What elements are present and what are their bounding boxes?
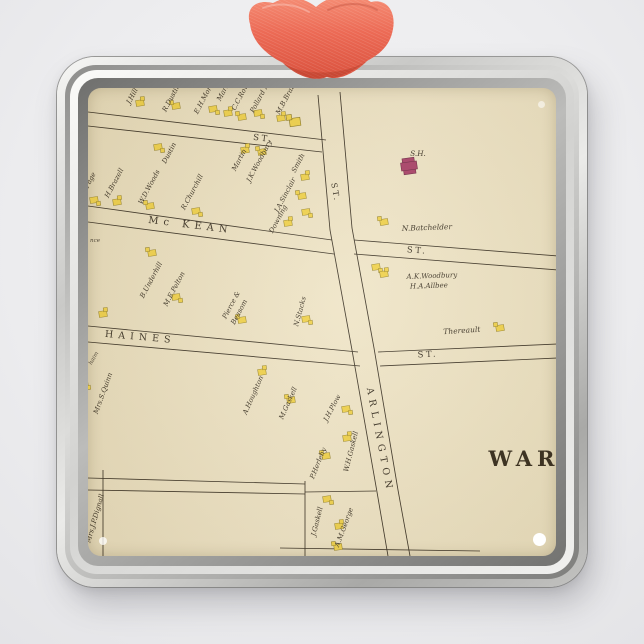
map-label-name-16: J.Page: [88, 171, 98, 195]
map-print: ST.ST.Mc KEANHAINESST.ST.ARLINGTONncehai…: [88, 88, 556, 556]
map-label-name-26: B.Underhill: [138, 261, 164, 301]
house-marker: [235, 111, 246, 121]
frame-highlight-top-right: [538, 101, 545, 108]
house-marker: [154, 143, 165, 153]
map-label-street-4: ST.: [407, 245, 428, 256]
map-label-name-38: M.Gaskell: [277, 386, 299, 422]
map-label-name-18: W.D.Woods: [137, 168, 162, 206]
map-label-name-24: Smith: [290, 152, 307, 174]
map-label-frag-7: nce: [90, 238, 101, 244]
map-label-name-27: M.E.Pelton: [161, 270, 186, 308]
house-marker: [493, 322, 504, 332]
map-label-name-37: A.Houghton: [241, 375, 266, 417]
map-label-street-1: ST.: [329, 182, 341, 203]
map-label-frag-8: haim: [88, 351, 100, 366]
house-marker: [342, 405, 353, 415]
house-marker: [377, 216, 388, 226]
house-marker: [135, 96, 145, 106]
map-label-name-32: A.K.Woodbury: [405, 271, 458, 281]
map-label-name-21: Martin: [230, 148, 249, 173]
house-marker: [90, 196, 101, 206]
house-marker: [88, 380, 91, 390]
map-label-name-14: Pollard Mills: [248, 88, 276, 115]
product-photo: ST.ST.Mc KEANHAINESST.ST.ARLINGTONncehai…: [0, 0, 644, 644]
map-label-name-31: N.Batchelder: [401, 222, 453, 233]
house-marker: [112, 195, 122, 205]
map-label-street-6: ARLINGTON: [364, 386, 395, 495]
frame-highlight-bottom-right: [533, 533, 546, 546]
map-label-name-17: H.Brazell: [103, 167, 126, 200]
ribbon-knot: [249, 0, 394, 79]
house-marker: [302, 208, 313, 218]
house-marker: [302, 315, 313, 325]
house-marker: [257, 365, 267, 375]
frame-highlight-bottom-left: [99, 537, 107, 545]
map-label-name-36: Mrs.S.Quinn: [92, 372, 115, 416]
school-house-marker: [400, 157, 418, 175]
map-label-name-15: M.B.Brazell: [274, 88, 301, 117]
house-marker: [283, 216, 293, 226]
map-label-name-39: J.H.Plow: [321, 393, 343, 424]
ribbon: [233, 0, 409, 92]
street-map: ST.ST.Mc KEANHAINESST.ST.ARLINGTONncehai…: [88, 88, 556, 556]
map-label-street-3: HAINES: [105, 329, 176, 346]
house-marker: [286, 113, 301, 127]
map-label-name-10: R.Dustin: [160, 88, 182, 114]
map-label-name-35: Thereault: [443, 325, 482, 337]
house-marker: [295, 190, 306, 200]
house-marker: [300, 170, 310, 180]
house-marker: [323, 495, 334, 505]
house-marker: [209, 105, 220, 115]
house-marker: [192, 207, 203, 217]
map-label-name-12: Martin: [215, 88, 234, 103]
map-label-name-43: J.Gaskell: [309, 506, 324, 539]
map-label-name-30: N.Stacks: [292, 295, 308, 328]
house-marker: [145, 247, 156, 257]
map-label-name-33: H.A.Allbee: [409, 281, 448, 290]
map-label-name-40: P.Herlehy: [308, 446, 328, 481]
map-label-street-5: ST.: [417, 349, 438, 360]
map-label-building-34: S.H.: [410, 149, 426, 158]
map-label-name-20: R.Churchill: [179, 173, 205, 212]
map-label-name-19: Dustin: [160, 141, 178, 166]
map-label-ward-45: WAR: [488, 446, 557, 471]
map-label-street-2: Mc KEAN: [148, 215, 233, 236]
house-marker: [98, 307, 108, 317]
street-lines: [88, 92, 556, 556]
